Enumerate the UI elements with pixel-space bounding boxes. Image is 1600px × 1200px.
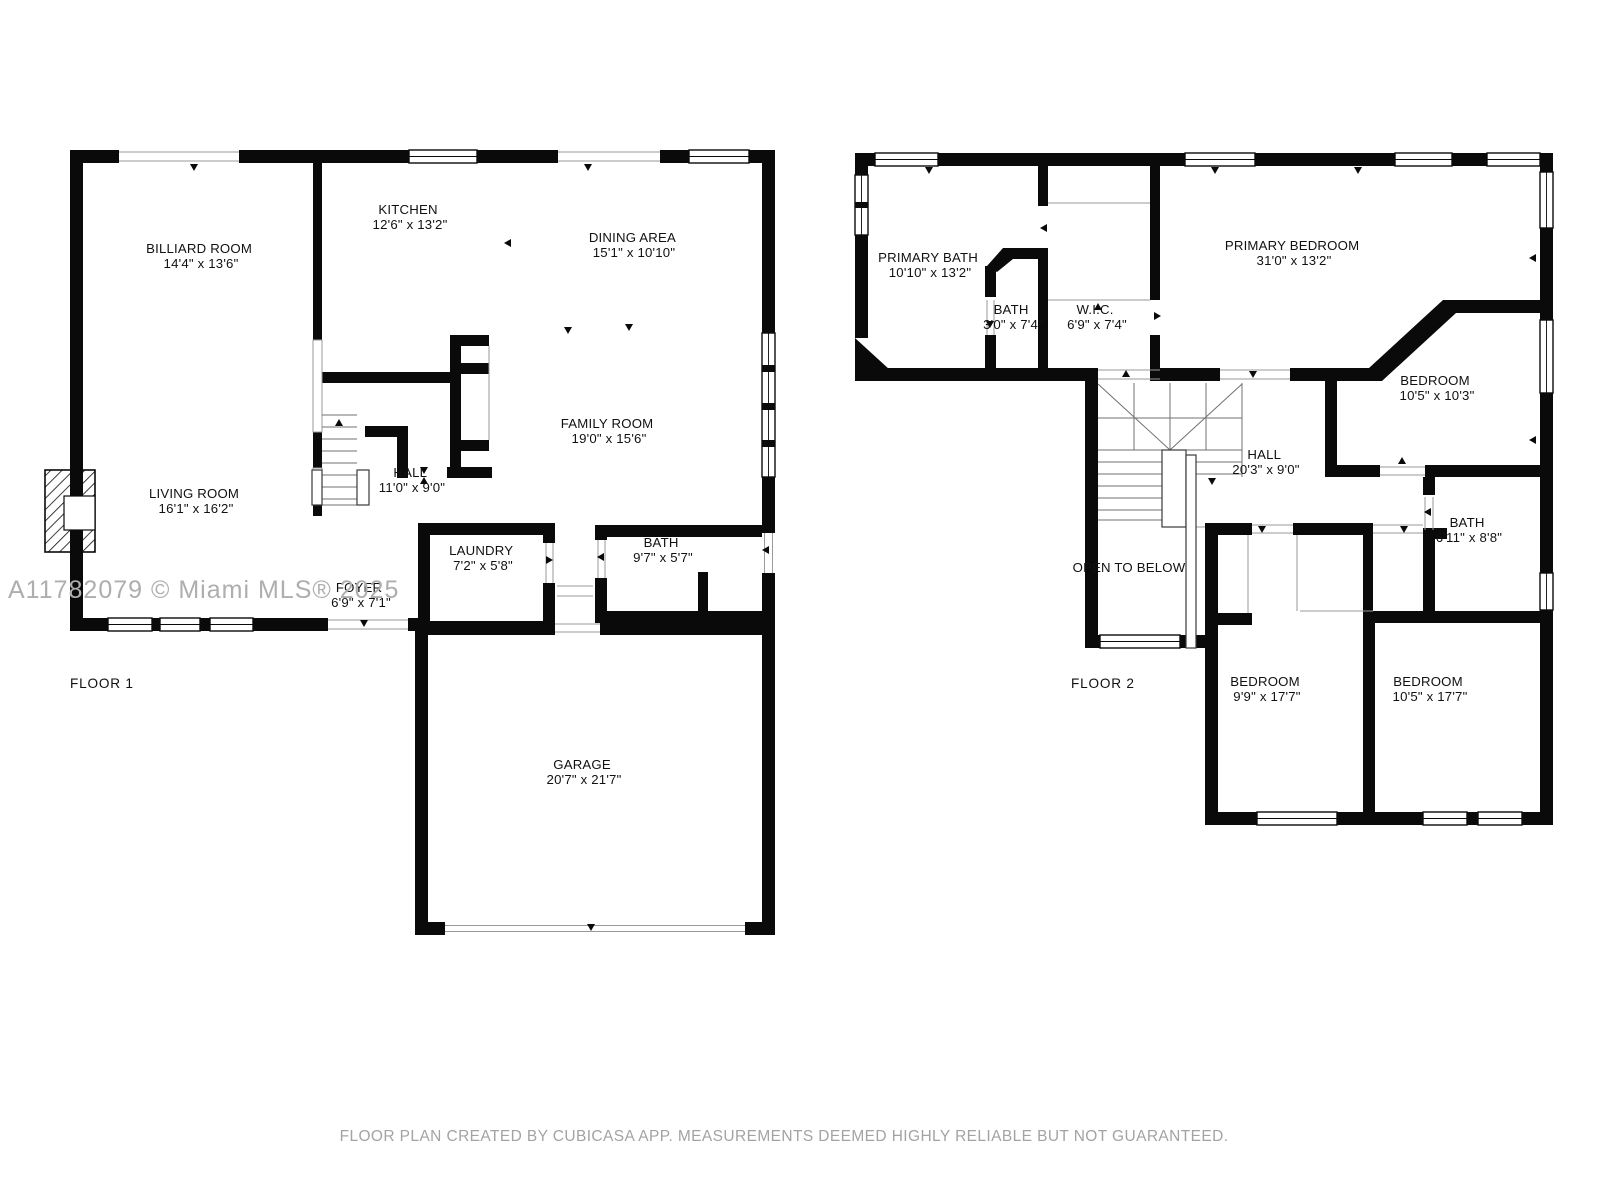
room-label-bath-f1: BATH 9'7" x 5'7" [633,535,693,565]
room-label-billiard-room: BILLIARD ROOM 14'4" x 13'6" [146,241,256,271]
room-label-bedroom-small: BEDROOM 10'5" x 10'3" [1400,373,1475,403]
room-label-bath-small-f2: BATH 3'0" x 7'4" [983,302,1043,332]
floor-plan-canvas: BILLIARD ROOM 14'4" x 13'6" KITCHEN 12'6… [0,0,1600,1200]
room-label-garage: GARAGE 20'7" x 21'7" [547,757,622,787]
room-label-primary-bedroom: PRIMARY BEDROOM 31'0" x 13'2" [1225,238,1363,268]
floor-plan-page: BILLIARD ROOM 14'4" x 13'6" KITCHEN 12'6… [0,0,1600,1200]
room-label-open-to-below: OPEN TO BELOW [1073,560,1186,575]
floor-2-plan: PRIMARY BATH 10'10" x 13'2" BATH 3'0" x … [855,153,1553,825]
room-label-kitchen: KITCHEN 12'6" x 13'2" [373,202,448,232]
floor-2-title: FLOOR 2 [1071,676,1135,691]
floor-1-plan: BILLIARD ROOM 14'4" x 13'6" KITCHEN 12'6… [45,150,775,935]
disclaimer-text: FLOOR PLAN CREATED BY CUBICASA APP. MEAS… [340,1128,1229,1145]
room-label-laundry: LAUNDRY 7'2" x 5'8" [449,543,517,573]
room-label-wic: W.I.C. 6'9" x 7'4" [1067,302,1127,332]
room-label-hall-f1: HALL 11'0" x 9'0" [379,465,446,495]
room-label-family-room: FAMILY ROOM 19'0" x 15'6" [561,416,657,446]
room-label-dining-area: DINING AREA 15'1" x 10'10" [589,230,679,260]
room-label-bedroom-right: BEDROOM 10'5" x 17'7" [1393,674,1468,704]
room-label-living-room: LIVING ROOM 16'1" x 16'2" [149,486,243,516]
floor-1-title: FLOOR 1 [70,676,134,691]
fireplace-icon [45,470,95,552]
room-label-bedroom-left: BEDROOM 9'9" x 17'7" [1230,674,1303,704]
mls-watermark: A11782079 © Miami MLS® 2025 [8,576,399,604]
floor-2-stairs-icon [1098,383,1242,648]
room-label-bath-f2: BATH 6'11" x 8'8" [1436,515,1503,545]
room-label-primary-bath: PRIMARY BATH 10'10" x 13'2" [878,250,982,280]
